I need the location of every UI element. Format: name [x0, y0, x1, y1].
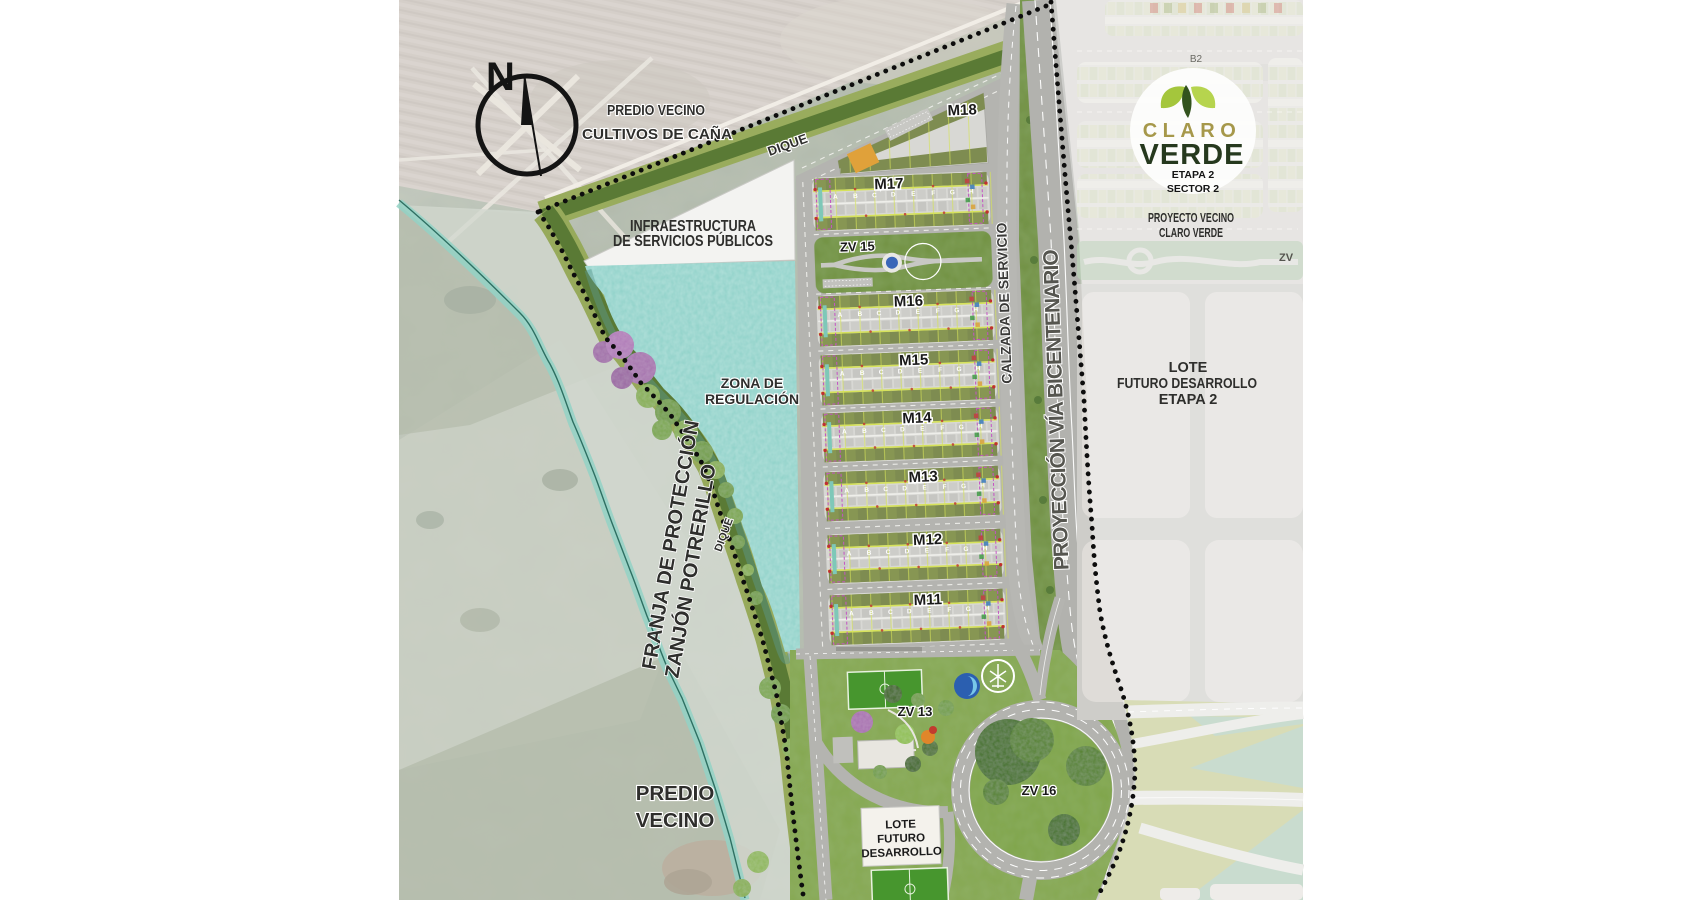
svg-text:A: A: [842, 429, 847, 436]
svg-text:FUTURO DESARROLLO: FUTURO DESARROLLO: [1117, 376, 1257, 392]
svg-text:D: D: [902, 485, 907, 492]
svg-text:A: A: [847, 550, 852, 557]
svg-text:LOTE: LOTE: [885, 818, 916, 831]
svg-text:M18: M18: [947, 101, 977, 119]
svg-text:H: H: [973, 306, 978, 313]
svg-text:M15: M15: [899, 351, 929, 369]
svg-text:C: C: [883, 486, 888, 493]
svg-text:M11: M11: [913, 591, 942, 609]
svg-text:H: H: [976, 365, 981, 372]
svg-text:M12: M12: [913, 531, 943, 549]
svg-text:F: F: [931, 190, 935, 197]
svg-text:H: H: [983, 545, 988, 552]
svg-text:B2: B2: [1190, 54, 1203, 65]
svg-text:B: B: [864, 487, 869, 494]
svg-text:F: F: [940, 425, 944, 432]
svg-text:PREDIO VECINO: PREDIO VECINO: [607, 102, 705, 119]
svg-text:REGULACIÓN: REGULACIÓN: [705, 390, 799, 407]
svg-text:M17: M17: [874, 175, 904, 193]
svg-text:PROYECTO VECINO: PROYECTO VECINO: [1148, 210, 1234, 225]
svg-text:SECTOR 2: SECTOR 2: [1167, 183, 1219, 195]
svg-text:C: C: [886, 549, 891, 556]
svg-text:M16: M16: [894, 293, 924, 311]
svg-text:B: B: [857, 311, 862, 318]
svg-text:F: F: [947, 607, 951, 614]
svg-text:ZV 16: ZV 16: [1022, 783, 1057, 798]
svg-text:H: H: [969, 188, 974, 195]
svg-text:PREDIO: PREDIO: [636, 782, 715, 805]
svg-text:G: G: [956, 366, 961, 373]
svg-text:B: B: [860, 370, 865, 377]
svg-text:B: B: [862, 428, 867, 435]
svg-text:A: A: [833, 194, 838, 201]
svg-text:A: A: [844, 487, 849, 494]
svg-text:G: G: [959, 424, 964, 431]
svg-text:G: G: [950, 189, 955, 196]
svg-text:ETAPA 2: ETAPA 2: [1159, 392, 1218, 408]
svg-text:B: B: [867, 550, 872, 557]
svg-text:B: B: [853, 193, 858, 200]
svg-text:CLARO VERDE: CLARO VERDE: [1159, 225, 1223, 240]
svg-text:ETAPA 2: ETAPA 2: [1172, 169, 1215, 181]
svg-text:C: C: [881, 427, 886, 434]
svg-text:VECINO: VECINO: [636, 809, 715, 832]
svg-text:G: G: [954, 307, 959, 314]
svg-text:ZONA DE: ZONA DE: [721, 375, 783, 391]
svg-text:G: G: [961, 483, 966, 490]
svg-text:M14: M14: [902, 409, 932, 427]
svg-text:C: C: [888, 609, 893, 616]
svg-text:G: G: [963, 546, 968, 553]
svg-text:M13: M13: [908, 468, 938, 486]
svg-text:F: F: [936, 308, 940, 315]
svg-text:D: D: [907, 608, 912, 615]
svg-text:A: A: [840, 371, 845, 378]
svg-text:CULTIVOS DE CAÑA: CULTIVOS DE CAÑA: [582, 125, 732, 143]
svg-text:F: F: [938, 367, 942, 374]
svg-text:ZV 13: ZV 13: [898, 704, 933, 719]
svg-text:H: H: [980, 482, 985, 489]
svg-text:FUTURO: FUTURO: [877, 832, 925, 846]
svg-text:C: C: [876, 310, 881, 317]
svg-text:VERDE: VERDE: [1140, 139, 1245, 171]
svg-text:F: F: [942, 484, 946, 491]
svg-text:F: F: [945, 547, 949, 554]
svg-text:H: H: [985, 605, 990, 612]
svg-text:DE SERVICIOS PÚBLICOS: DE SERVICIOS PÚBLICOS: [613, 231, 773, 250]
svg-text:D: D: [905, 548, 910, 555]
svg-text:A: A: [837, 312, 842, 319]
svg-text:LOTE: LOTE: [1169, 360, 1208, 376]
svg-text:ZV: ZV: [1279, 252, 1294, 264]
svg-text:H: H: [978, 423, 983, 430]
svg-text:B: B: [869, 610, 874, 617]
svg-text:ZV 15: ZV 15: [840, 238, 875, 254]
svg-text:C: C: [879, 369, 884, 376]
svg-text:G: G: [966, 606, 971, 613]
svg-text:A: A: [849, 610, 854, 617]
svg-text:N: N: [486, 55, 515, 99]
